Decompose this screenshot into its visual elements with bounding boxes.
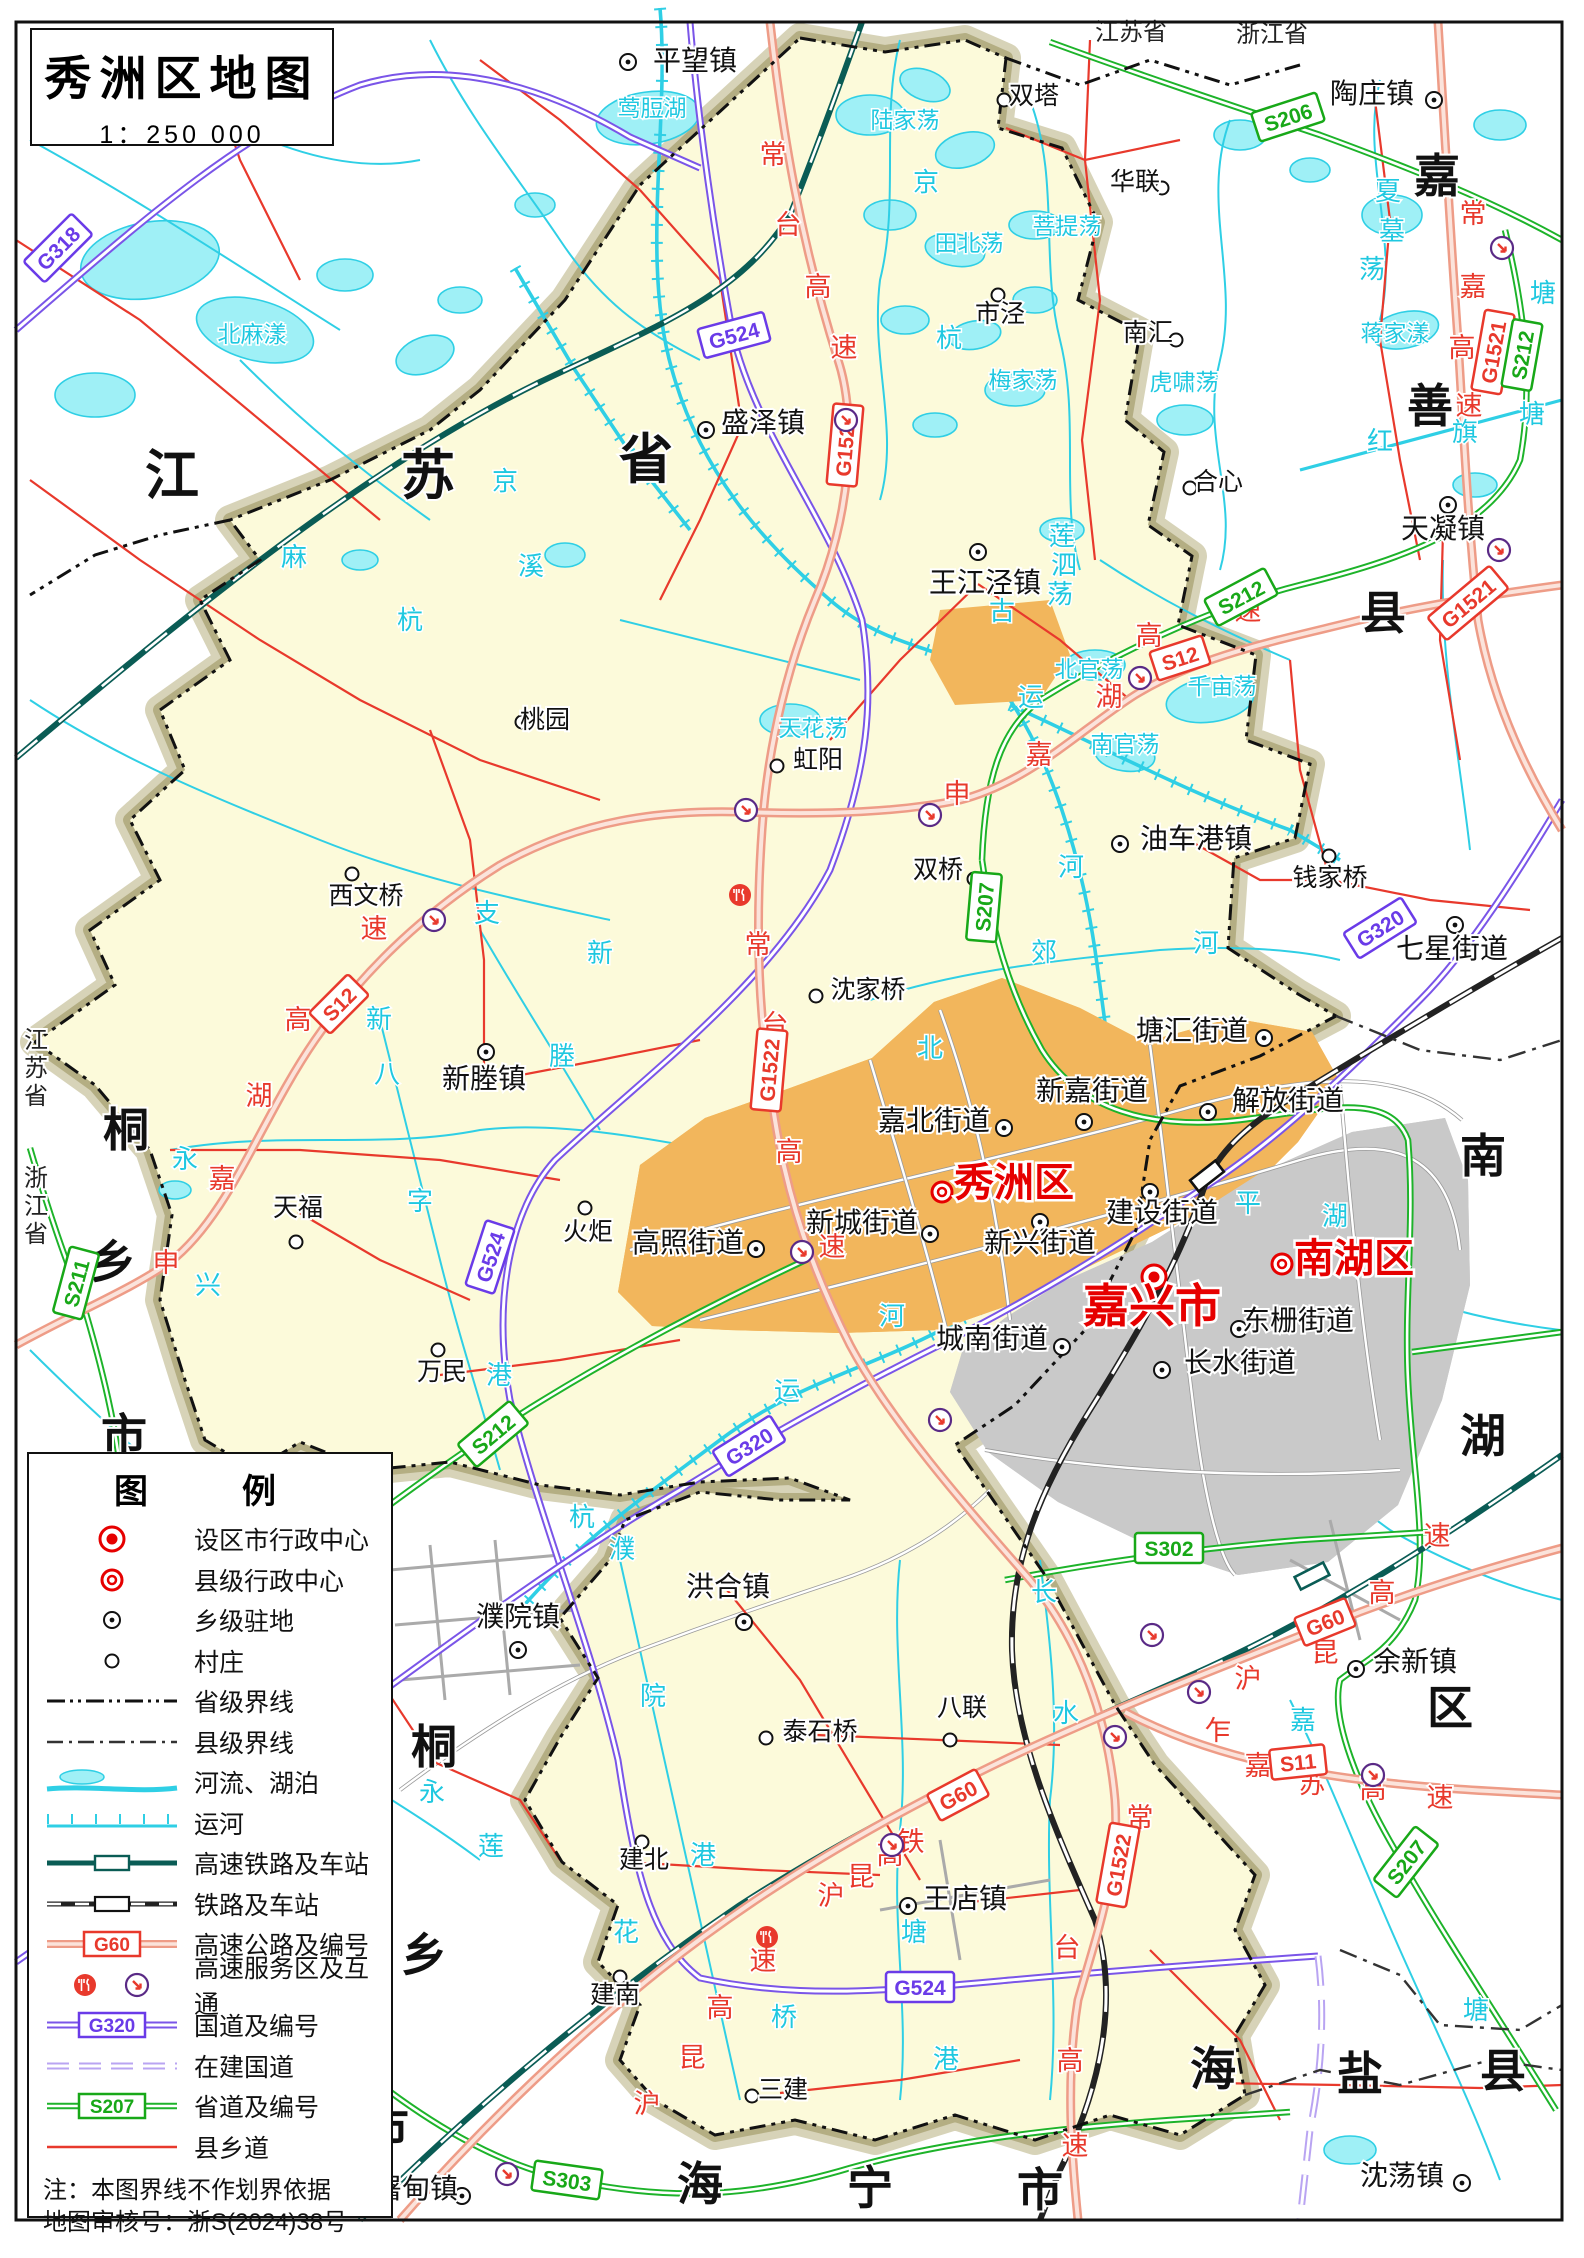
map-label: 红 — [1367, 427, 1393, 456]
map-label: 速 — [831, 333, 858, 363]
place-label: 双桥 — [913, 856, 963, 884]
legend-item-town: 乡级驻地 — [29, 1600, 391, 1641]
legend-symbol-svc-icon — [29, 1970, 194, 2000]
map-label: 宁 — [847, 2163, 893, 2214]
title-box: 秀洲区地图 1：250 000 — [30, 28, 334, 146]
map-label: 省 — [24, 1083, 48, 1110]
svg-text:S302: S302 — [1144, 1538, 1193, 1561]
map-label: 海 — [677, 2159, 723, 2210]
svg-text:G320: G320 — [88, 2016, 134, 2037]
legend-item-prov: S207省道及编号 — [29, 2086, 391, 2127]
legend-symbol-city-icon — [29, 1524, 194, 1554]
map-label: 高 — [1057, 2046, 1084, 2076]
place-label: 八联 — [937, 1695, 987, 1722]
interchange-icon — [735, 799, 757, 821]
map-label: 溪 — [518, 552, 544, 581]
place-合心: 合心 — [1184, 468, 1244, 496]
place-label: 建设街道 — [1106, 1197, 1218, 1229]
map-label: 高 — [1449, 333, 1476, 363]
place-label: 三建 — [758, 2076, 808, 2104]
legend-label: 国道及编号 — [194, 2007, 319, 2043]
legend-box: 图 例 设区市行政中心县级行政中心乡级驻地村庄省级界线县级界线河流、湖泊运河高速… — [27, 1452, 393, 2218]
place-label: 王江泾镇 — [929, 567, 1041, 599]
legend-symbol-croad-icon — [29, 2132, 194, 2162]
place-华联: 华联 — [1110, 168, 1169, 196]
map-label: 县 — [1360, 588, 1406, 639]
map-label: 浙 — [24, 1165, 48, 1192]
map-label: 沪 — [818, 1881, 845, 1911]
map-label: 港 — [486, 1361, 512, 1390]
legend-item-county: 县级行政中心 — [29, 1560, 391, 1601]
legend-item-countyb: 县级界线 — [29, 1722, 391, 1763]
map-label: 湖 — [1096, 682, 1123, 712]
map-label: 嘉 — [1414, 151, 1460, 202]
legend-label: 县级行政中心 — [194, 1562, 344, 1598]
map-label: 支 — [474, 899, 500, 928]
road-badge-G1522: G1522 — [751, 1028, 788, 1111]
place-label: 新兴街道 — [984, 1227, 1096, 1259]
place-label: 南湖区 — [1294, 1236, 1414, 1281]
map-label: 高 — [805, 272, 832, 302]
map-label: 水 — [1053, 1699, 1079, 1728]
map-label: 区 — [1427, 1683, 1473, 1734]
map-label: 高 — [1136, 621, 1163, 651]
map-label: 莲 — [1049, 522, 1075, 551]
map-label: 常 — [745, 930, 772, 960]
place-label: 解放街道 — [1232, 1085, 1344, 1117]
place-label: 塘汇街道 — [1136, 1015, 1248, 1047]
map-label: 院 — [640, 1682, 666, 1711]
svg-text:G60: G60 — [94, 1935, 130, 1956]
place-label: 濮院镇 — [476, 1601, 560, 1633]
map-label: 市 — [1017, 2165, 1063, 2216]
place-label: 秀洲区 — [953, 1160, 1074, 1205]
map-label: 新 — [366, 1005, 392, 1034]
map-label: 沪 — [634, 2089, 661, 2119]
legend-label: 乡级驻地 — [194, 1602, 294, 1638]
map-label: 高 — [1369, 1578, 1396, 1608]
road-badge-G60: G60 — [1294, 1598, 1356, 1646]
legend-label: 铁路及车站 — [194, 1886, 319, 1922]
interchange-icon — [1104, 1726, 1126, 1748]
road-badge-S207: S207 — [966, 872, 1002, 942]
place-南湖区: 南湖区 — [1272, 1236, 1414, 1281]
place-平望镇: 平望镇 — [620, 45, 737, 77]
legend-symbol-rail-icon — [29, 1889, 194, 1919]
place-label: 嘉兴市 — [1083, 1281, 1221, 1332]
map-label: 申 — [944, 779, 971, 809]
map-label: 莲 — [478, 1832, 504, 1861]
map-scale: 1：250 000 — [32, 115, 332, 151]
svg-text:S207: S207 — [89, 2097, 133, 2118]
legend-item-svc: 高速服务区及互通 — [29, 1965, 391, 2006]
legend-label: 县乡道 — [194, 2129, 269, 2165]
interchange-icon — [791, 1241, 813, 1263]
place-陶庄镇: 陶庄镇 — [1330, 78, 1442, 110]
legend-label: 设区市行政中心 — [194, 1521, 369, 1557]
map-label: 苏 — [401, 446, 455, 506]
map-label: 永 — [419, 1778, 445, 1807]
map-label: 高 — [776, 1137, 803, 1167]
legend-label: 县级界线 — [194, 1724, 294, 1760]
legend-label: 村庄 — [194, 1643, 244, 1679]
place-label: 建北 — [619, 1846, 669, 1874]
map-label: 旗 — [1452, 418, 1478, 447]
map-label: 江 — [145, 446, 199, 506]
place-label: 南汇 — [1123, 319, 1173, 347]
map-label: 河 — [1193, 929, 1219, 958]
road-badge-S303: S303 — [531, 2160, 603, 2199]
interchange-icon — [919, 804, 941, 826]
legend-item-river: 河流、湖泊 — [29, 1762, 391, 1803]
map-label: 陆家荡 — [871, 108, 940, 133]
map-label: 速 — [819, 1232, 846, 1262]
place-label: 盛泽镇 — [721, 407, 805, 439]
map-label: 江 — [24, 1193, 48, 1220]
map-label: 江 — [24, 1027, 48, 1054]
map-label: 乡 — [401, 1930, 447, 1981]
place-label: 桃园 — [520, 706, 570, 734]
map-label: 新 — [587, 939, 613, 968]
map-label: 乍 — [1205, 1716, 1232, 1746]
interchange-icon — [929, 1409, 951, 1431]
map-label: 高 — [707, 1993, 734, 2023]
place-label: 天凝镇 — [1401, 513, 1485, 545]
map-label: 北官荡 — [1055, 657, 1124, 682]
legend-item-city: 设区市行政中心 — [29, 1519, 391, 1560]
place-label: 嘉北街道 — [878, 1105, 990, 1137]
map-label: 速 — [1456, 391, 1483, 421]
map-label: 南 — [1460, 1131, 1506, 1182]
map-label: 省 — [619, 430, 673, 490]
map-label: 高 — [285, 1005, 312, 1035]
legend-item-rail: 铁路及车站 — [29, 1884, 391, 1925]
place-label: 泰石桥 — [782, 1718, 857, 1746]
map-label: 北麻漾 — [218, 322, 287, 347]
map-label: 京 — [913, 168, 939, 197]
map-label: 台 — [1054, 1933, 1081, 1963]
map-label: 湖 — [1460, 1411, 1506, 1462]
map-label: 速 — [1424, 1521, 1451, 1551]
road-badge-S207: S207 — [1373, 1826, 1439, 1898]
interchange-icon — [1141, 1624, 1163, 1646]
interchange-icon — [1362, 1764, 1384, 1786]
map-label: 桥 — [771, 2003, 797, 2032]
map-label: 速 — [750, 1946, 777, 1976]
map-label: 嘉 — [1026, 740, 1053, 770]
map-label: 嘉 — [1460, 272, 1487, 302]
map-label: 麻 — [281, 543, 307, 572]
map-label: 兴 — [195, 1271, 221, 1300]
map-label: 塘 — [1463, 1996, 1489, 2025]
interchange-icon — [496, 2163, 518, 2185]
map-label: 杭 — [936, 324, 962, 353]
legend-symbol-provb-icon — [29, 1686, 194, 1716]
map-label: 桐 — [103, 1105, 149, 1156]
road-badge-S302: S302 — [1135, 1533, 1203, 1563]
interchange-icon — [835, 409, 857, 431]
place-label: 火炬 — [563, 1218, 613, 1246]
map-label: 花 — [613, 1918, 639, 1947]
map-label: 塘 — [1519, 400, 1545, 429]
map-label: 塘 — [1530, 279, 1556, 308]
map-label: 虎啸荡 — [1150, 370, 1219, 395]
legend-note-boundary: 注：本图界线不作划界依据 — [43, 2175, 391, 2207]
legend-symbol-village-icon — [29, 1646, 194, 1676]
map-label: 运 — [774, 1377, 800, 1406]
place-label: 余新镇 — [1373, 1646, 1457, 1678]
map-label: 字 — [407, 1187, 433, 1216]
map-label: 速 — [361, 914, 388, 944]
map-label: 昆 — [679, 2043, 706, 2073]
legend-symbol-canal-icon — [29, 1808, 194, 1838]
map-label: 塘 — [901, 1918, 927, 1947]
map-label: 蒋家漾 — [1361, 321, 1430, 346]
map-label: 天花荡 — [779, 716, 848, 741]
place-label: 合心 — [1193, 468, 1243, 496]
map-label: 速 — [1062, 2131, 1089, 2161]
place-东栅街道: 东栅街道 — [1231, 1305, 1354, 1337]
map-label: 长 — [1031, 1578, 1057, 1607]
place-濮院镇: 濮院镇 — [476, 1601, 560, 1658]
place-label: 市泾 — [975, 300, 1025, 328]
map-label: 永 — [172, 1145, 198, 1174]
legend-symbol-hsr-icon — [29, 1848, 194, 1878]
map-label: 嘉 — [1245, 1751, 1272, 1781]
map-label: 湖 — [246, 1081, 273, 1111]
map-label: 善 — [1407, 381, 1453, 432]
map-label: 河 — [879, 1302, 905, 1331]
map-label: 夏 — [1375, 177, 1401, 206]
place-label: 王店镇 — [923, 1883, 1007, 1915]
map-label: 千亩荡 — [1188, 674, 1257, 699]
legend-label: 运河 — [194, 1805, 244, 1841]
map-label: 申 — [153, 1248, 180, 1278]
place-label: 虹阳 — [793, 746, 843, 774]
place-label: 西文桥 — [328, 882, 403, 910]
legend-items: 设区市行政中心县级行政中心乡级驻地村庄省级界线县级界线河流、湖泊运河高速铁路及车… — [29, 1519, 391, 2167]
legend-symbol-river-icon — [29, 1767, 194, 1797]
place-label: 钱家桥 — [1292, 864, 1367, 892]
svg-text:S11: S11 — [1279, 1750, 1318, 1777]
map-label: 莺脰湖 — [618, 96, 687, 121]
map-label: 港 — [690, 1841, 716, 1870]
map-label: 海 — [1190, 2044, 1236, 2095]
place-钱家桥: 钱家桥 — [1292, 850, 1367, 893]
road-badge-S11: S11 — [1269, 1744, 1327, 1780]
map-label: 濮 — [609, 1535, 635, 1564]
place-桃园: 桃园 — [516, 706, 571, 734]
svg-text:S207: S207 — [972, 882, 999, 933]
map-label: 古 — [989, 597, 1015, 626]
legend-item-hsr: 高速铁路及车站 — [29, 1843, 391, 1884]
place-label: 东栅街道 — [1242, 1305, 1354, 1337]
map-label: 湖 — [1322, 1202, 1348, 1231]
map-label: 苏 — [24, 1055, 48, 1082]
map-label: 沪 — [1235, 1664, 1262, 1694]
interchange-icon — [881, 1834, 903, 1856]
legend-label: 高速铁路及车站 — [194, 1845, 369, 1881]
service-area-icon — [756, 1926, 778, 1948]
place-label: 万民 — [417, 1359, 467, 1386]
map-label: 梅家荡 — [989, 368, 1058, 393]
service-area-icon — [729, 884, 751, 906]
map-label: 常 — [1460, 199, 1487, 229]
legend-symbol-countyb-icon — [29, 1727, 194, 1757]
map-label: 港 — [933, 2045, 959, 2074]
map-label: 京 — [492, 467, 518, 496]
map-label: 盐 — [1337, 2049, 1383, 2100]
map-label: 南官荡 — [1091, 732, 1160, 757]
legend-item-croad: 县乡道 — [29, 2127, 391, 2168]
map-label: 荡 — [1047, 580, 1073, 609]
legend-item-provb: 省级界线 — [29, 1681, 391, 1722]
place-label: 油车港镇 — [1140, 823, 1252, 855]
map-label: 杭 — [569, 1503, 595, 1532]
map-label: 县 — [1480, 2046, 1526, 2097]
map-label: 菩提荡 — [1033, 214, 1102, 239]
place-label: 洪合镇 — [686, 1571, 770, 1603]
legend-note-approval: 地图审核号：浙S(2024)38号 — [43, 2207, 391, 2239]
legend-symbol-nat-icon: G320 — [29, 2010, 194, 2040]
map-label: 平 — [1235, 1189, 1261, 1218]
place-label: 沈家桥 — [830, 976, 905, 1004]
place-label: 新塍镇 — [442, 1063, 526, 1095]
map-label: 泗 — [1051, 551, 1077, 580]
place-label: 天福 — [273, 1194, 323, 1222]
place-label: 双塔 — [1009, 82, 1059, 110]
legend-symbol-town-icon — [29, 1605, 194, 1635]
map-label: 田北荡 — [935, 231, 1004, 256]
map-label: 杭 — [397, 606, 423, 635]
place-label: 高照街道 — [632, 1227, 744, 1259]
map-label: 台 — [775, 210, 802, 240]
map-label: 北 — [917, 1034, 943, 1063]
place-label: 平望镇 — [653, 45, 737, 77]
place-南汇: 南汇 — [1123, 319, 1183, 347]
place-label: 长水街道 — [1184, 1347, 1296, 1379]
legend-item-village: 村庄 — [29, 1641, 391, 1682]
legend-label: 河流、湖泊 — [194, 1764, 319, 1800]
interchange-icon — [1488, 539, 1510, 561]
legend-title: 图 例 — [29, 1464, 391, 1513]
interchange-icon — [423, 909, 445, 931]
place-label: 陶庄镇 — [1330, 78, 1414, 110]
place-label: 新嘉街道 — [1036, 1075, 1148, 1107]
svg-text:G524: G524 — [894, 1977, 946, 2000]
map-label: 省 — [24, 1221, 48, 1248]
legend-symbol-expwy-icon: G60 — [29, 1929, 194, 1959]
map-page: 平望镇盛泽镇陶庄镇天凝镇王江泾镇油车港镇七星街道新塍镇高照街道新城街道嘉北街道新… — [0, 0, 1584, 2258]
legend-symbol-prov-icon: S207 — [29, 2091, 194, 2121]
interchange-icon — [1188, 1681, 1210, 1703]
page-title: 秀洲区地图 — [32, 40, 332, 109]
map-label: 嘉 — [209, 1164, 236, 1194]
map-label: 八 — [374, 1060, 400, 1089]
place-label: 建南 — [590, 1981, 640, 2009]
map-label: 塍 — [549, 1042, 575, 1071]
legend-label: 在建国道 — [194, 2048, 294, 2084]
map-label: 昆 — [848, 1862, 875, 1892]
place-label: 华联 — [1110, 168, 1160, 196]
map-label: 桐 — [411, 1722, 457, 1773]
map-label: 荡 — [1359, 255, 1385, 284]
place-label: 城南街道 — [936, 1323, 1048, 1355]
map-label: 河 — [1058, 853, 1084, 882]
map-label: 速 — [1427, 1783, 1454, 1813]
interchange-icon — [1129, 667, 1151, 689]
place-label: 七星街道 — [1396, 933, 1508, 965]
place-秀洲区: 秀洲区 — [932, 1160, 1074, 1205]
legend-notes: 注：本图界线不作划界依据 地图审核号：浙S(2024)38号 — [29, 2175, 391, 2239]
interchange-icon — [1491, 237, 1513, 259]
legend-item-natuc: 在建国道 — [29, 2046, 391, 2087]
map-label: 浙江省 — [1236, 21, 1308, 48]
legend-symbol-county-icon — [29, 1565, 194, 1595]
place-沈荡镇: 沈荡镇 — [1360, 2160, 1470, 2192]
map-label: 常 — [760, 140, 787, 170]
place-label: 沈荡镇 — [1360, 2160, 1444, 2192]
legend-item-canal: 运河 — [29, 1803, 391, 1844]
legend-label: 省级界线 — [194, 1683, 294, 1719]
map-label: 嘉 — [1290, 1706, 1316, 1735]
map-label: 墓 — [1379, 217, 1405, 246]
map-label: 郊 — [1031, 938, 1057, 967]
legend-label: 省道及编号 — [194, 2088, 319, 2124]
road-badge-G524: G524 — [886, 1972, 954, 2002]
legend-symbol-natuc-icon — [29, 2051, 194, 2081]
map-label: 运 — [1018, 683, 1044, 712]
